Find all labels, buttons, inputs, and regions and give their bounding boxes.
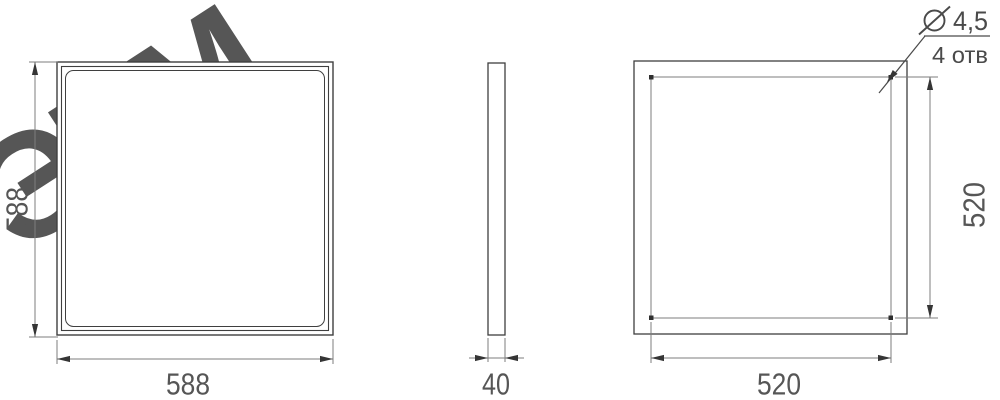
- side-thickness-value: 40: [482, 367, 510, 400]
- hole-spacing-width-value: 520: [757, 367, 801, 400]
- arrow-right-icon: [878, 355, 891, 361]
- hole-diameter-value: 4,5: [953, 6, 988, 36]
- side-thickness-dimension: 40: [469, 338, 524, 400]
- back-view-outline: [634, 61, 907, 334]
- hole-mark-bottom-left: [649, 316, 654, 321]
- arrow-right-icon: [320, 356, 333, 362]
- arrow-left-icon: [505, 355, 518, 361]
- arrow-left-icon: [57, 356, 70, 362]
- front-width-dimension: 588: [57, 339, 333, 400]
- hole-count-label: 4 отв: [932, 42, 988, 68]
- technical-drawing-canvas: ЭТМ 588 588: [0, 0, 1000, 400]
- side-view-outline: [488, 63, 505, 335]
- arrow-up-icon: [927, 77, 933, 90]
- arrow-left-icon: [651, 355, 664, 361]
- arrow-right-icon: [475, 355, 488, 361]
- hole-mark-top-left: [649, 75, 654, 80]
- front-width-value: 588: [166, 367, 210, 400]
- front-height-value: 588: [0, 187, 35, 231]
- arrow-down-icon: [927, 305, 933, 318]
- diameter-icon: [919, 7, 950, 35]
- hole-spacing-height-dimension: 520: [895, 77, 992, 318]
- side-view: 40: [469, 63, 524, 400]
- front-view-outer-edge: [57, 62, 333, 335]
- hole-spacing-height-value: 520: [957, 182, 992, 228]
- back-view: 520 520 4,5 4 отв: [634, 6, 992, 400]
- hole-mark-bottom-right: [889, 316, 894, 321]
- arrow-up-icon: [32, 62, 38, 75]
- arrow-down-icon: [32, 324, 38, 337]
